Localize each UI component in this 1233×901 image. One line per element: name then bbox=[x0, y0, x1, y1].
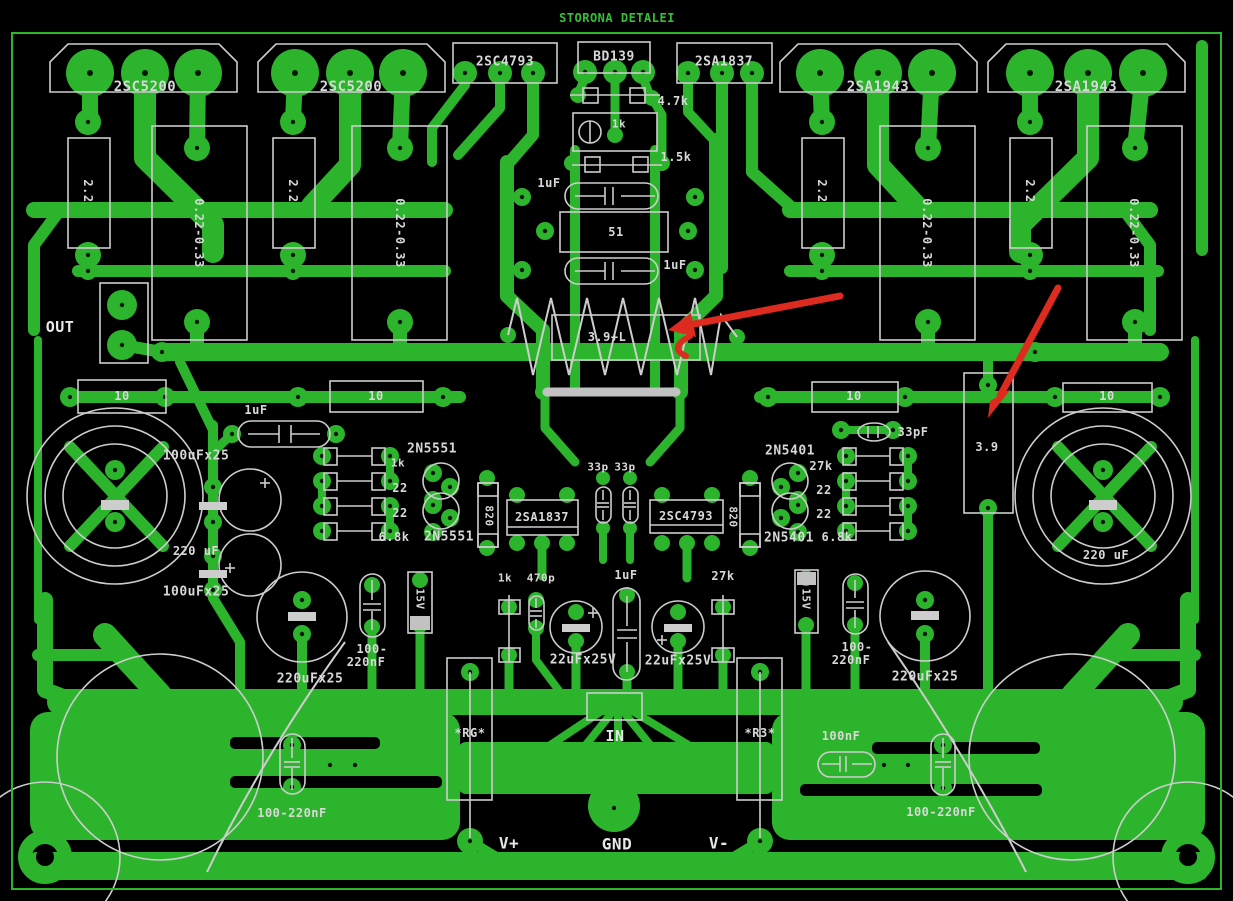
pcb-label: 22 bbox=[392, 481, 407, 495]
copper-trace bbox=[688, 85, 714, 140]
pad-hole bbox=[468, 839, 472, 843]
pcb-label: 100- bbox=[357, 642, 388, 656]
pad-hole bbox=[448, 485, 452, 489]
cap-stripe bbox=[101, 500, 129, 510]
pcb-label: 1uF bbox=[614, 568, 637, 582]
pad-hole bbox=[400, 70, 406, 76]
pcb-label: 2SC4793 bbox=[659, 509, 713, 523]
pad-hole bbox=[86, 120, 90, 124]
pcb-label: *R3* bbox=[745, 726, 776, 740]
plane-slot bbox=[230, 776, 442, 788]
pad bbox=[679, 535, 695, 551]
pad-hole bbox=[68, 395, 72, 399]
pad-hole bbox=[398, 146, 402, 150]
pcb-label: 2SA1837 bbox=[515, 510, 569, 524]
silkscreen bbox=[219, 469, 281, 531]
pad bbox=[670, 633, 686, 649]
cap-stripe bbox=[562, 624, 590, 632]
pcb-label: 22uFx25V bbox=[550, 653, 617, 668]
pcb-label: 15V bbox=[800, 588, 813, 609]
pad-hole bbox=[750, 71, 754, 75]
mounting-hole bbox=[36, 848, 54, 866]
pcb-label: 1k bbox=[498, 572, 512, 585]
pad-hole bbox=[693, 268, 697, 272]
zener-band bbox=[410, 616, 430, 630]
pcb-label: 0.22-0.33 bbox=[1127, 198, 1141, 268]
pcb-label: BD139 bbox=[593, 50, 635, 65]
pad-hole bbox=[1158, 395, 1162, 399]
pcb-label: 2N5551 bbox=[407, 442, 457, 457]
pad-hole bbox=[820, 253, 824, 257]
pad-hole bbox=[1028, 120, 1032, 124]
pad-hole bbox=[906, 763, 910, 767]
pcb-label: 470p bbox=[527, 572, 556, 585]
pad-hole bbox=[1101, 520, 1105, 524]
pcb-label: 2N5401 bbox=[765, 444, 815, 459]
pad-hole bbox=[1033, 350, 1037, 354]
pad-hole bbox=[720, 71, 724, 75]
pcb-label: 33p bbox=[614, 461, 635, 474]
pcb-label: 27k bbox=[711, 569, 734, 583]
pad-hole bbox=[796, 503, 800, 507]
pad-hole bbox=[431, 503, 435, 507]
pad-hole bbox=[113, 468, 117, 472]
pad-hole bbox=[820, 269, 824, 273]
pad-hole bbox=[398, 320, 402, 324]
pad bbox=[534, 535, 550, 551]
pad-hole bbox=[211, 520, 215, 524]
pad-hole bbox=[820, 120, 824, 124]
pad-hole bbox=[1085, 70, 1091, 76]
pad-hole bbox=[291, 253, 295, 257]
pad-hole bbox=[986, 506, 990, 510]
pcb-label: 1k bbox=[612, 118, 626, 131]
pcb-label: 2.2 bbox=[815, 179, 829, 202]
pad bbox=[412, 572, 428, 588]
copper-trace bbox=[458, 85, 500, 155]
pad bbox=[592, 699, 608, 715]
pcb-label: 220nF bbox=[832, 653, 871, 667]
pad-hole bbox=[520, 195, 524, 199]
pad-hole bbox=[796, 471, 800, 475]
pad-hole bbox=[334, 432, 338, 436]
pad bbox=[568, 633, 584, 649]
pad-hole bbox=[906, 454, 910, 458]
pad-hole bbox=[230, 432, 234, 436]
pad-hole bbox=[817, 70, 823, 76]
pad-hole bbox=[686, 229, 690, 233]
pad-hole bbox=[612, 806, 616, 810]
pad-hole bbox=[463, 71, 467, 75]
pad-hole bbox=[1101, 468, 1105, 472]
pad bbox=[798, 617, 814, 633]
pad-hole bbox=[120, 303, 124, 307]
pad bbox=[620, 699, 636, 715]
pcb-label: 2SA1943 bbox=[847, 79, 910, 95]
pcb-label: 6.8k bbox=[822, 530, 853, 544]
pcb-label: 1uF bbox=[244, 403, 267, 417]
pad-hole bbox=[296, 395, 300, 399]
pad bbox=[509, 535, 525, 551]
pcb-label: 820 bbox=[483, 505, 496, 526]
pad-hole bbox=[195, 146, 199, 150]
pcb-label: OUT bbox=[46, 318, 75, 336]
pcb-label: 820 bbox=[727, 506, 740, 527]
pad bbox=[654, 535, 670, 551]
pcb-label: 0.22-0.33 bbox=[393, 198, 407, 268]
pad-hole bbox=[926, 320, 930, 324]
pad-hole bbox=[291, 120, 295, 124]
pcb-label: 100uFx25 bbox=[163, 449, 230, 464]
mounting-hole bbox=[1179, 848, 1197, 866]
pad bbox=[559, 535, 575, 551]
pcb-label: 2SA1943 bbox=[1055, 79, 1118, 95]
pad-hole bbox=[1028, 253, 1032, 257]
copper-trace bbox=[507, 85, 533, 165]
pcb-label: 27k bbox=[809, 459, 832, 473]
pad-hole bbox=[766, 395, 770, 399]
pcb-label: 2SC4793 bbox=[476, 55, 534, 70]
pad-hole bbox=[923, 632, 927, 636]
copper-trace bbox=[213, 598, 240, 700]
pad-hole bbox=[448, 516, 452, 520]
copper-trace bbox=[34, 210, 60, 330]
pcb-label: 2.2 bbox=[81, 179, 95, 202]
copper-trace bbox=[650, 392, 680, 462]
zener-band bbox=[797, 572, 816, 585]
pad-hole bbox=[1133, 320, 1137, 324]
pcb-label: 3.9 bbox=[975, 440, 998, 454]
ground-plane bbox=[30, 852, 1207, 880]
silkscreen bbox=[740, 483, 760, 547]
pcb-label: 1.5k bbox=[661, 150, 692, 164]
pcb-label: 6.8k bbox=[379, 530, 410, 544]
pcb-label: 15V bbox=[414, 588, 427, 609]
pad-hole bbox=[929, 70, 935, 76]
copper-trace bbox=[752, 85, 790, 206]
pad-hole bbox=[903, 395, 907, 399]
pad-hole bbox=[906, 529, 910, 533]
pad-hole bbox=[844, 504, 848, 508]
pad-hole bbox=[160, 350, 164, 354]
pcb-label: V- bbox=[709, 834, 729, 853]
pcb-label: 1uF bbox=[537, 176, 560, 190]
pad-hole bbox=[693, 195, 697, 199]
pcb-label: 220 uF bbox=[173, 544, 219, 558]
pad-hole bbox=[1028, 269, 1032, 273]
pcb-label: 1k bbox=[391, 457, 405, 470]
pcb-label: 0.22-0.33 bbox=[192, 198, 206, 268]
pcb-label: 3.9+L bbox=[588, 330, 627, 344]
pcb-label: 100-220nF bbox=[257, 806, 327, 820]
pad-hole bbox=[113, 520, 117, 524]
pcb-label: 100-220nF bbox=[906, 805, 976, 819]
pcb-label: 2SA1837 bbox=[695, 55, 753, 70]
pad bbox=[704, 535, 720, 551]
pad-hole bbox=[686, 71, 690, 75]
pad-hole bbox=[1053, 395, 1057, 399]
board-title: STORONA DETALEI bbox=[559, 11, 675, 25]
pcb-label: 4.7k bbox=[658, 94, 689, 108]
pcb-label: 2N5551 bbox=[424, 530, 474, 545]
pad-hole bbox=[906, 504, 910, 508]
pcb-label: 2.2 bbox=[286, 179, 300, 202]
pad bbox=[568, 604, 584, 620]
pcb-screenshot: STORONA DETALEI2SC52002SC52002SC4793BD13… bbox=[0, 0, 1233, 901]
pad-hole bbox=[142, 70, 148, 76]
pad-hole bbox=[498, 71, 502, 75]
pcb-label: 22 bbox=[816, 483, 831, 497]
pad-hole bbox=[891, 428, 895, 432]
pad-hole bbox=[520, 268, 524, 272]
pad-hole bbox=[923, 598, 927, 602]
pad-hole bbox=[543, 229, 547, 233]
pcb-label: 220uFx25 bbox=[892, 670, 959, 685]
pad-hole bbox=[758, 839, 762, 843]
pad-hole bbox=[1140, 70, 1146, 76]
pad bbox=[742, 540, 758, 556]
pad-hole bbox=[906, 479, 910, 483]
pcb-label: 100nF bbox=[822, 729, 861, 743]
pad-hole bbox=[844, 454, 848, 458]
pcb-label: GND bbox=[602, 835, 632, 854]
pcb-label: *RG* bbox=[455, 726, 486, 740]
pad-hole bbox=[986, 383, 990, 387]
pad-hole bbox=[211, 485, 215, 489]
pad-hole bbox=[195, 320, 199, 324]
pad-hole bbox=[86, 269, 90, 273]
pad-hole bbox=[1133, 146, 1137, 150]
pad-hole bbox=[839, 428, 843, 432]
pcb-label: 220uFx25 bbox=[277, 672, 344, 687]
pcb-label: 10 bbox=[846, 389, 861, 403]
pcb-label: 2SC5200 bbox=[114, 79, 177, 95]
cap-stripe bbox=[288, 612, 316, 621]
pad-hole bbox=[531, 71, 535, 75]
pad-hole bbox=[875, 70, 881, 76]
pcb-label: 10 bbox=[1099, 389, 1114, 403]
pcb-label: 220nF bbox=[347, 655, 386, 669]
pad-hole bbox=[779, 516, 783, 520]
copper-trace bbox=[545, 392, 575, 462]
pcb-label: 220 uF bbox=[1083, 548, 1129, 562]
cap-stripe bbox=[199, 570, 227, 578]
pad-hole bbox=[87, 70, 93, 76]
cap-stripe bbox=[1089, 500, 1117, 510]
annotation-arrow bbox=[1000, 288, 1058, 396]
plane-slot bbox=[800, 784, 1042, 796]
pcb-label: V+ bbox=[499, 834, 519, 853]
pad-hole bbox=[291, 269, 295, 273]
pcb-label: 10 bbox=[114, 389, 129, 403]
pad-hole bbox=[300, 632, 304, 636]
pad-hole bbox=[300, 598, 304, 602]
pcb-label: 2.2 bbox=[1023, 179, 1037, 202]
pcb-label: 33pF bbox=[898, 425, 929, 439]
pad-hole bbox=[844, 479, 848, 483]
pcb-label: 22uFx25V bbox=[645, 654, 712, 669]
cap-stripe bbox=[664, 624, 692, 632]
pcb-label: 22 bbox=[392, 506, 407, 520]
pad-hole bbox=[292, 70, 298, 76]
pad-hole bbox=[926, 146, 930, 150]
pcb-label: 33p bbox=[587, 461, 608, 474]
cap-stripe bbox=[199, 502, 227, 510]
pcb-label: 22 bbox=[816, 507, 831, 521]
pcb-label: 10 bbox=[368, 389, 383, 403]
pad-hole bbox=[441, 395, 445, 399]
pcb-label: 51 bbox=[608, 225, 623, 239]
pcb-label: 2SC5200 bbox=[320, 79, 383, 95]
pad-hole bbox=[195, 70, 201, 76]
jumper-and-bands bbox=[410, 392, 816, 630]
pcb-label: 2N5401 bbox=[764, 531, 814, 546]
pad-hole bbox=[882, 763, 886, 767]
pcb-board: STORONA DETALEI2SC52002SC52002SC4793BD13… bbox=[0, 0, 1233, 901]
pad-hole bbox=[120, 343, 124, 347]
pad-hole bbox=[1027, 70, 1033, 76]
cap-stripe bbox=[911, 611, 939, 620]
pcb-label: 100- bbox=[842, 640, 873, 654]
pad-hole bbox=[328, 763, 332, 767]
pad-hole bbox=[347, 70, 353, 76]
pad-hole bbox=[353, 763, 357, 767]
pcb-label: 1uF bbox=[663, 258, 686, 272]
pcb-label: 0.22-0.33 bbox=[920, 198, 934, 268]
pad bbox=[670, 604, 686, 620]
pad-hole bbox=[779, 485, 783, 489]
pcb-label: IN bbox=[605, 727, 624, 745]
pad-hole bbox=[431, 471, 435, 475]
pad bbox=[564, 155, 580, 171]
pad bbox=[479, 540, 495, 556]
pcb-label: 100uFx25 bbox=[163, 585, 230, 600]
pad-hole bbox=[86, 253, 90, 257]
